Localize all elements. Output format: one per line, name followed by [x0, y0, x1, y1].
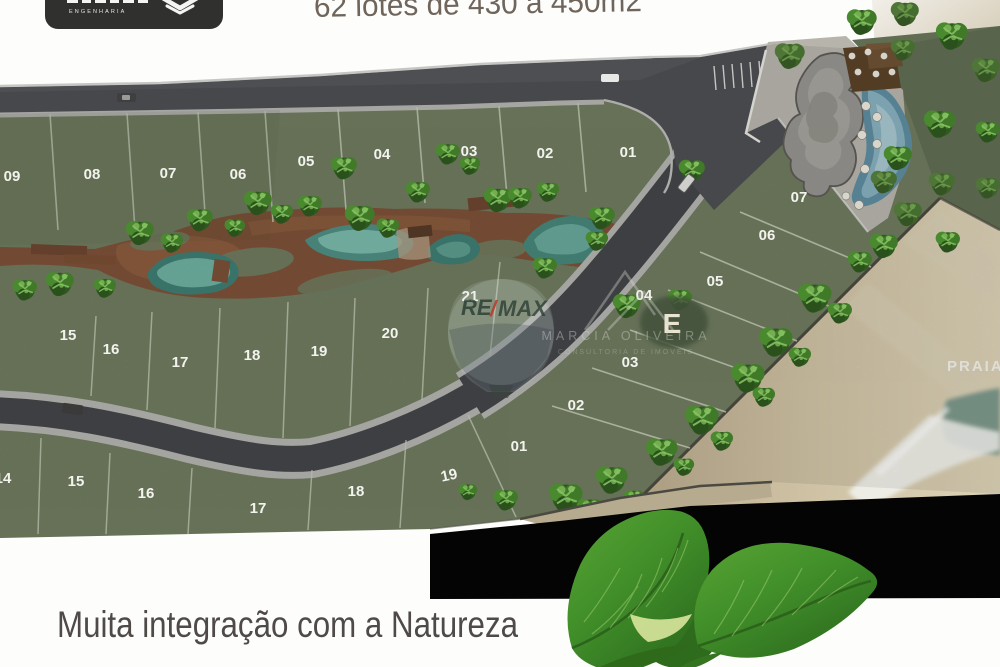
svg-text:MAX: MAX [498, 296, 548, 321]
svg-text:16: 16 [103, 341, 120, 358]
svg-text:01: 01 [511, 438, 528, 455]
svg-text:17: 17 [172, 354, 189, 371]
svg-text:02: 02 [568, 397, 585, 414]
svg-text:Muita integração com a Naturez: Muita integração com a Natureza [57, 604, 518, 645]
svg-text:15: 15 [68, 473, 85, 490]
svg-text:ENGENHARIA: ENGENHARIA [69, 9, 126, 15]
svg-text:14: 14 [0, 470, 12, 487]
svg-text:07: 07 [160, 165, 177, 182]
svg-text:17: 17 [250, 500, 267, 517]
svg-text:15: 15 [60, 327, 77, 344]
svg-text:03: 03 [622, 354, 639, 371]
svg-text:05: 05 [298, 153, 315, 170]
svg-text:06: 06 [759, 227, 776, 244]
svg-text:16: 16 [138, 485, 155, 502]
svg-text:05: 05 [707, 273, 724, 290]
svg-text:18: 18 [348, 483, 365, 500]
svg-text:01: 01 [620, 144, 637, 161]
svg-text:20: 20 [382, 325, 399, 342]
svg-text:06: 06 [230, 166, 247, 183]
svg-text:19: 19 [311, 343, 328, 360]
svg-text:08: 08 [84, 166, 101, 183]
svg-text:09: 09 [4, 168, 21, 185]
svg-text:CONSULTORIA DE IMOVEIS: CONSULTORIA DE IMOVEIS [558, 349, 694, 356]
svg-text:19: 19 [439, 466, 459, 486]
svg-text:18: 18 [244, 347, 261, 364]
svg-text:MARCIA OLIVEIRA: MARCIA OLIVEIRA [541, 329, 710, 343]
svg-text:07: 07 [791, 189, 808, 206]
svg-text:03: 03 [461, 143, 478, 160]
svg-text:04: 04 [374, 146, 391, 163]
svg-text:RE: RE [461, 295, 493, 320]
svg-text:02: 02 [537, 145, 554, 162]
